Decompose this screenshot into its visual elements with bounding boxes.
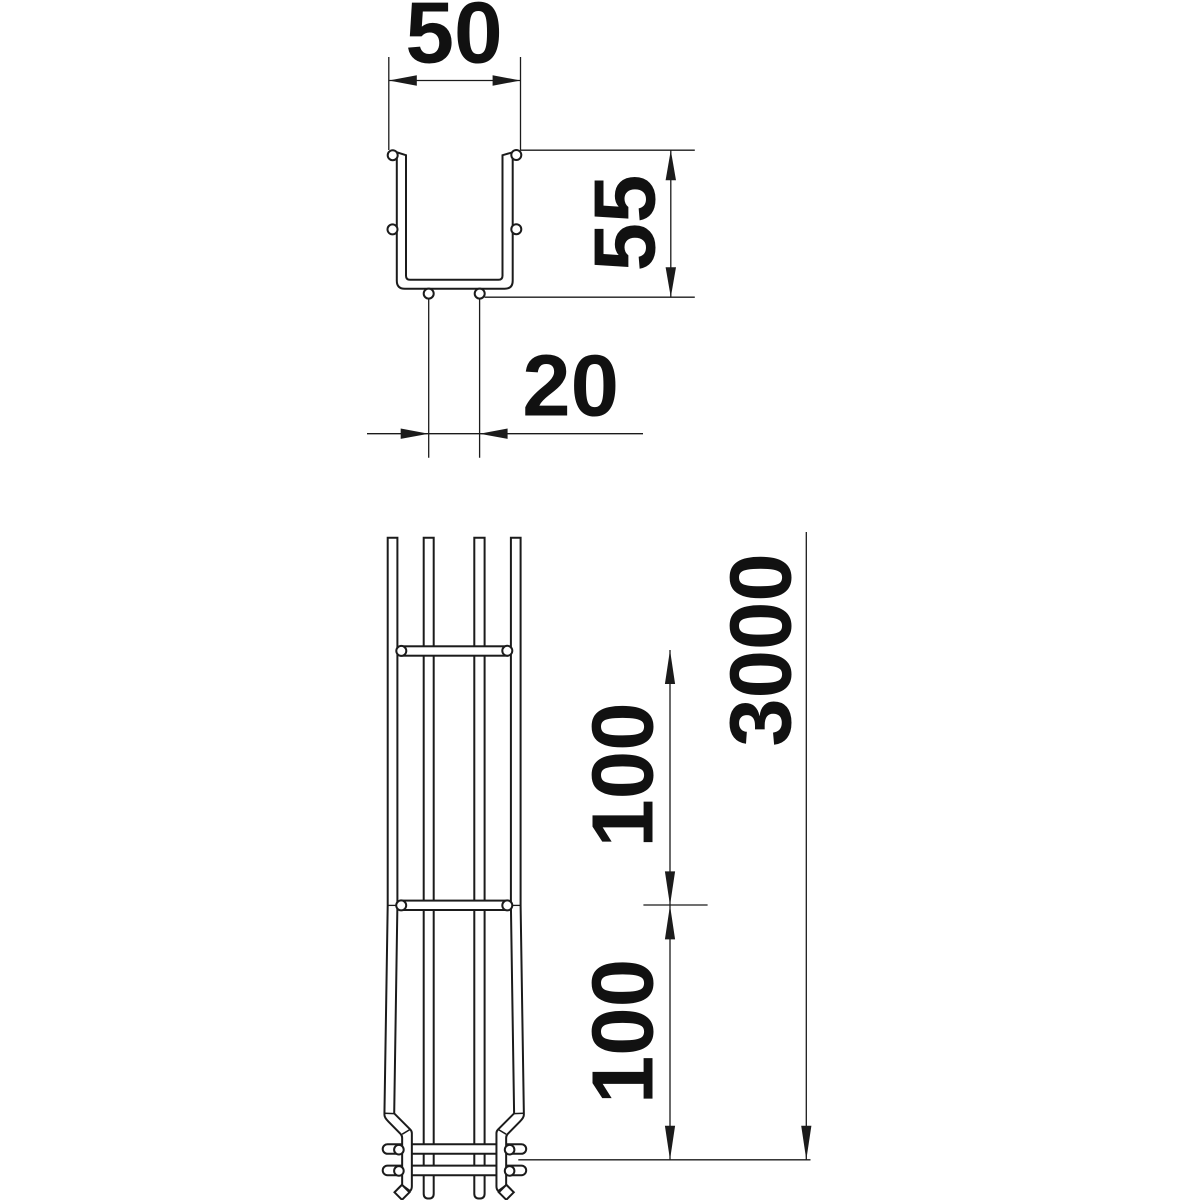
svg-text:55: 55 [576,175,673,272]
svg-text:50: 50 [405,0,502,82]
svg-text:100: 100 [575,702,672,847]
svg-text:100: 100 [575,959,672,1104]
svg-text:20: 20 [522,338,619,435]
svg-text:3000: 3000 [713,553,810,747]
